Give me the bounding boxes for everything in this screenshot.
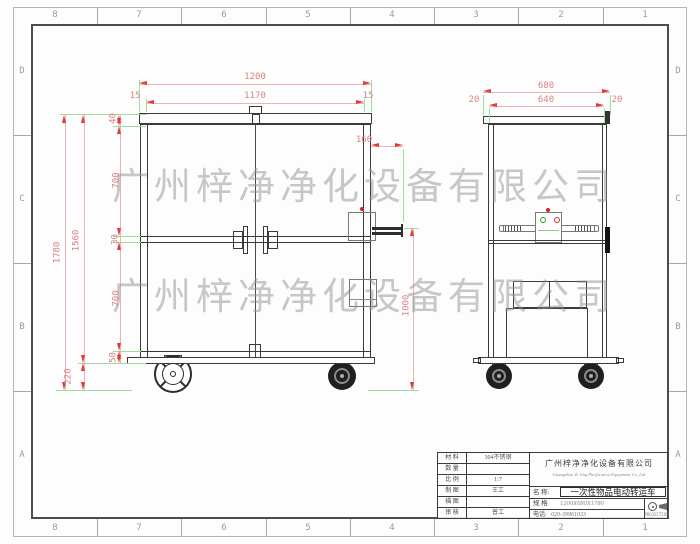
- product-name-value: 一次性物品电动转运车: [560, 487, 666, 497]
- handle-bar-upper: [372, 227, 402, 230]
- title-hline: [529, 509, 644, 510]
- quantity-label: 数 量: [438, 464, 467, 474]
- base-tab-right: [616, 358, 624, 363]
- zone-tick: [669, 391, 687, 392]
- zone-tick: [350, 7, 351, 24]
- zone-number-bottom: 7: [132, 524, 146, 533]
- dim-arrow: [596, 103, 604, 107]
- base-tab-left: [473, 358, 481, 363]
- zone-tick: [181, 7, 182, 24]
- control-box-line: [538, 230, 559, 231]
- zone-number-bottom: 1: [638, 524, 652, 533]
- dim-arrow: [602, 89, 610, 93]
- stop-button: [554, 217, 560, 223]
- zone-number-top: 6: [217, 11, 231, 20]
- traced-value: [467, 497, 529, 507]
- electric-box-line: [350, 299, 376, 300]
- ext-line: [604, 108, 605, 123]
- zone-number-bottom: 8: [48, 524, 62, 533]
- title-row-quantity: 数 量: [438, 464, 529, 475]
- zone-tick: [518, 7, 519, 24]
- handle-grip-right: [575, 226, 593, 231]
- dim-arrow: [395, 143, 403, 147]
- spec-value: 1200X680X1780: [560, 500, 642, 508]
- zone-number-bottom: 5: [301, 524, 315, 533]
- zone-number-top: 4: [385, 11, 399, 20]
- material-value: 304不锈钢: [467, 453, 529, 463]
- mid-rail-top: [141, 236, 370, 237]
- projection-dot-icon: [652, 506, 654, 508]
- dim-arrow: [410, 382, 414, 390]
- ext-line: [489, 108, 490, 123]
- electric-box: [349, 279, 377, 307]
- dim-front-handle-length: 160: [349, 136, 379, 145]
- dim-line: [413, 228, 414, 390]
- dim-arrow: [489, 103, 497, 107]
- bottom-latch: [249, 344, 261, 358]
- dim-arrow: [410, 228, 414, 236]
- caster-hub: [589, 374, 593, 378]
- dim-side-overall-width: 680: [528, 82, 564, 91]
- zone-tick: [266, 519, 267, 537]
- drawn-label: 制 图: [438, 486, 467, 496]
- phone-value: 020-39961033: [551, 511, 641, 519]
- title-row-checked: 审 核 普工: [438, 508, 529, 518]
- dim-arrow: [81, 363, 85, 371]
- zone-tick: [603, 7, 604, 24]
- zone-letter-left: A: [15, 451, 29, 460]
- dim-front-side-left: 15: [127, 92, 143, 101]
- dim-front-overall-height: 1780: [54, 235, 63, 271]
- zone-number-bottom: 4: [385, 524, 399, 533]
- zone-tick: [266, 7, 267, 24]
- door-split-line: [255, 124, 256, 358]
- checked-value: 普工: [467, 508, 529, 518]
- dim-side-margin-left: 20: [466, 96, 482, 105]
- phone-label: 电话:: [533, 511, 551, 519]
- upper-box-divider: [549, 281, 550, 308]
- dim-front-inner-width: 1170: [233, 92, 277, 101]
- zone-number-top: 1: [638, 11, 652, 20]
- dim-front-overall-width: 1200: [233, 73, 277, 82]
- zone-letter-right: A: [671, 451, 685, 460]
- drawn-value: 王工: [467, 486, 529, 496]
- wall-inner-left: [147, 124, 148, 358]
- mid-rail-bottom: [141, 242, 370, 243]
- zone-number-top: 7: [132, 11, 146, 20]
- shelf-line-bottom: [489, 243, 607, 244]
- door-knob-left: [233, 231, 243, 249]
- title-row-drawn: 制 图 王工: [438, 486, 529, 497]
- scale-value: 1:7: [467, 475, 529, 485]
- zone-letter-right: D: [671, 67, 685, 76]
- handle-bar-end: [401, 224, 403, 237]
- ext-line: [403, 149, 404, 222]
- dim-line: [65, 115, 66, 390]
- side-wall-inner-right: [602, 124, 603, 358]
- zone-tick: [603, 519, 604, 537]
- side-wall-inner-left: [493, 124, 494, 358]
- zone-number-top: 5: [301, 11, 315, 20]
- door-edge-handle: [605, 227, 610, 253]
- zone-tick: [13, 135, 31, 136]
- title-row-material: 材 料 304不锈钢: [438, 453, 529, 464]
- dim-front-wheel-height: 220: [65, 363, 74, 391]
- zone-tick: [97, 7, 98, 24]
- ext-line: [483, 95, 484, 115]
- quantity-value: [467, 464, 529, 474]
- shelf-line-top: [489, 240, 607, 241]
- emergency-dot: [546, 208, 550, 212]
- zone-number-top: 2: [554, 11, 568, 20]
- zone-number-bottom: 6: [217, 524, 231, 533]
- side-top-cap: [483, 116, 610, 124]
- material-label: 材 料: [438, 453, 467, 463]
- product-name-label: 名 称:: [533, 489, 559, 497]
- base-bar: [127, 357, 375, 364]
- title-row-scale: 比 例 1:7: [438, 475, 529, 486]
- lower-box: [506, 308, 588, 358]
- side-base-bar: [478, 357, 619, 364]
- dim-line: [146, 103, 364, 104]
- dim-line: [84, 115, 85, 363]
- zone-tick: [181, 519, 182, 537]
- dim-arrow: [139, 81, 147, 85]
- dim-front-lower-door: 700: [113, 285, 122, 313]
- zone-number-bottom: 3: [469, 524, 483, 533]
- zone-number-top: 3: [469, 11, 483, 20]
- zone-number-bottom: 2: [554, 524, 568, 533]
- dim-front-side-right: 15: [360, 92, 376, 101]
- caster-hub: [340, 374, 344, 378]
- projection-label: PROJECTION: [644, 513, 669, 517]
- dim-arrow: [81, 382, 85, 390]
- zone-tick: [97, 519, 98, 537]
- zone-tick: [13, 263, 31, 264]
- dim-front-bottom-rail: 50: [110, 344, 119, 372]
- handle-grip-left: [505, 226, 523, 231]
- dim-line: [489, 106, 604, 107]
- zone-tick: [669, 263, 687, 264]
- dim-arrow: [146, 100, 154, 104]
- zone-letter-left: B: [15, 323, 29, 332]
- zone-tick: [434, 519, 435, 537]
- zone-tick: [350, 519, 351, 537]
- zone-tick: [518, 519, 519, 537]
- dim-front-body-height: 1560: [73, 223, 82, 259]
- company-name-cn: 广州梓净净化设备有限公司: [530, 459, 668, 468]
- zone-number-top: 8: [48, 11, 62, 20]
- ext-line: [368, 390, 419, 391]
- top-latch: [249, 106, 262, 114]
- wheel-hub: [170, 371, 176, 377]
- handle-end-left: [499, 225, 504, 232]
- ext-line: [60, 114, 147, 115]
- drawing-sheet: 8 7 6 5 4 3 2 1 8 7 6 5 4 3 2 1 D C B A …: [0, 0, 700, 544]
- zone-letter-left: C: [15, 195, 29, 204]
- spec-label: 规 格: [533, 500, 557, 508]
- upper-box: [513, 281, 587, 308]
- handle-bar-lower: [372, 232, 402, 235]
- zone-letter-left: D: [15, 67, 29, 76]
- dim-arrow: [81, 115, 85, 123]
- dim-arrow: [62, 115, 66, 123]
- emergency-dot: [360, 207, 364, 211]
- caster-hub: [497, 374, 501, 378]
- start-button: [540, 217, 546, 223]
- zone-letter-right: B: [671, 323, 685, 332]
- dim-front-upper-door: 700: [113, 167, 122, 195]
- dim-front-handle-height: 1000: [403, 288, 412, 324]
- zone-tick: [669, 135, 687, 136]
- dim-arrow: [81, 355, 85, 363]
- dim-front-mid-rail: 30: [112, 226, 121, 254]
- dim-arrow: [363, 81, 371, 85]
- door-knob-left-plate: [243, 226, 248, 254]
- zone-letter-right: C: [671, 195, 685, 204]
- zone-tick: [434, 7, 435, 24]
- title-block: 材 料 304不锈钢 数 量 比 例 1:7 制 图 王工 描 图 审 核 普工…: [437, 452, 668, 519]
- wall-inner-right: [363, 124, 364, 358]
- dim-side-inner-width: 640: [528, 96, 564, 105]
- company-name-en: Guangzhou Zi Jing Purification Equipment…: [530, 472, 668, 478]
- dim-side-margin-right: 20: [609, 96, 625, 105]
- title-row-traced: 描 图: [438, 497, 529, 508]
- handle-end-right: [594, 225, 599, 232]
- zone-tick: [13, 391, 31, 392]
- dim-line: [483, 92, 610, 93]
- checked-label: 审 核: [438, 508, 467, 518]
- door-knob-right: [268, 231, 278, 249]
- dim-front-top-cap: 40: [110, 105, 119, 133]
- dim-arrow: [483, 89, 491, 93]
- traced-label: 描 图: [438, 497, 467, 507]
- dim-line: [139, 84, 371, 85]
- scale-label: 比 例: [438, 475, 467, 485]
